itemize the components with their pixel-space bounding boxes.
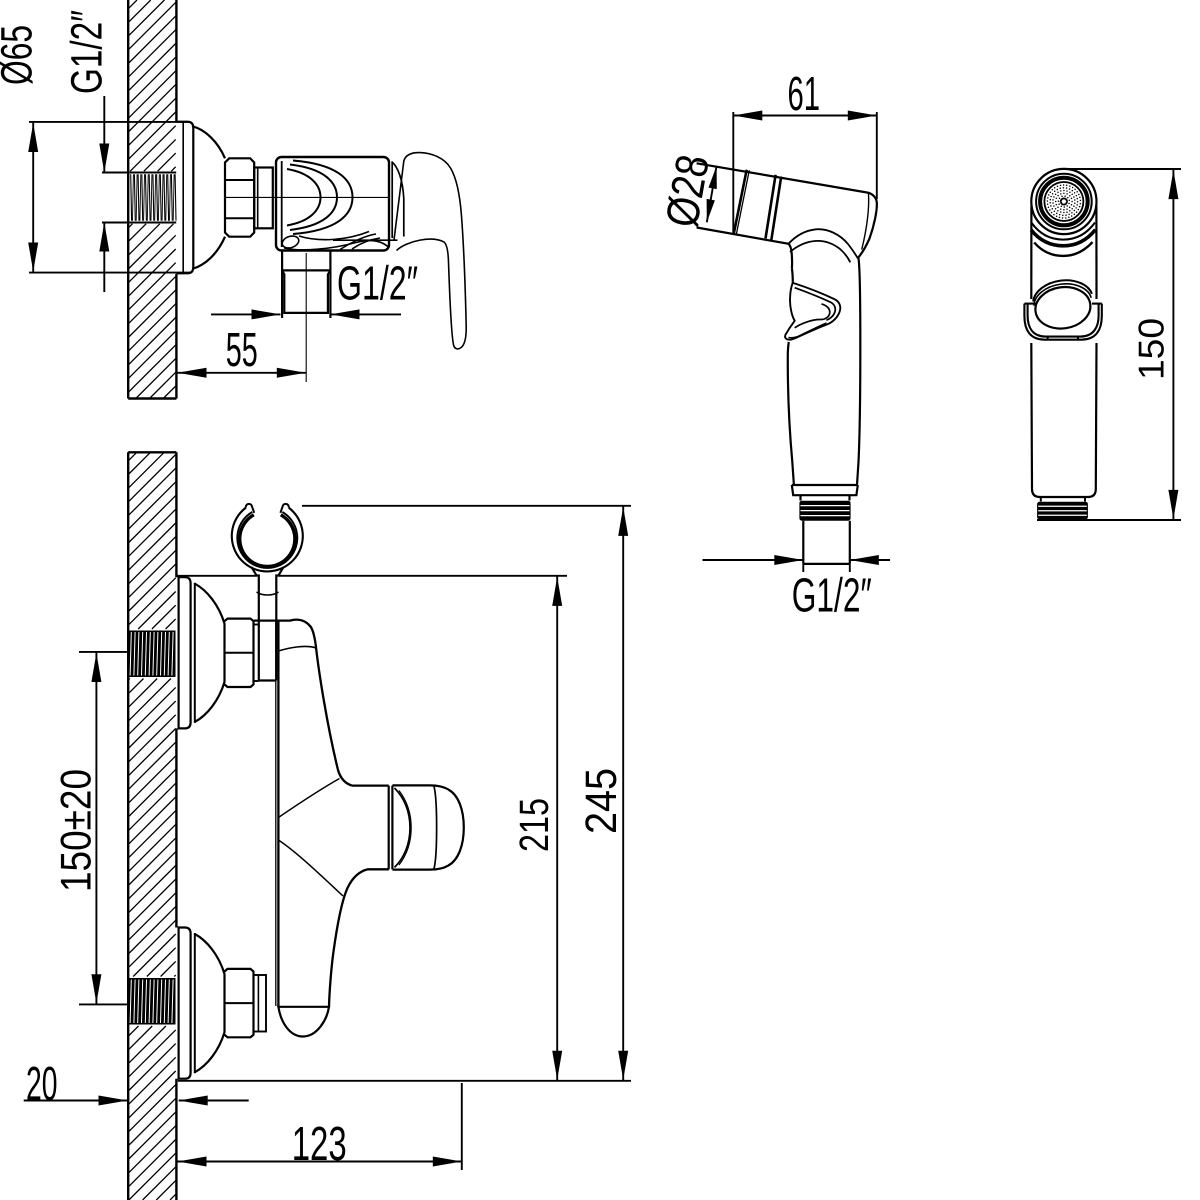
svg-text:245: 245 [577,768,626,834]
svg-text:150: 150 [1131,318,1172,380]
svg-text:G1/2″: G1/2″ [63,10,112,94]
svg-text:G1/2″: G1/2″ [337,258,418,311]
svg-text:55: 55 [226,324,258,377]
svg-text:G1/2″: G1/2″ [792,570,872,623]
svg-text:123: 123 [292,1118,347,1171]
svg-text:20: 20 [26,1058,58,1111]
svg-text:150±20: 150±20 [53,769,101,892]
svg-text:61: 61 [788,68,821,121]
svg-text:Ø65: Ø65 [0,25,42,85]
svg-text:215: 215 [511,798,557,852]
